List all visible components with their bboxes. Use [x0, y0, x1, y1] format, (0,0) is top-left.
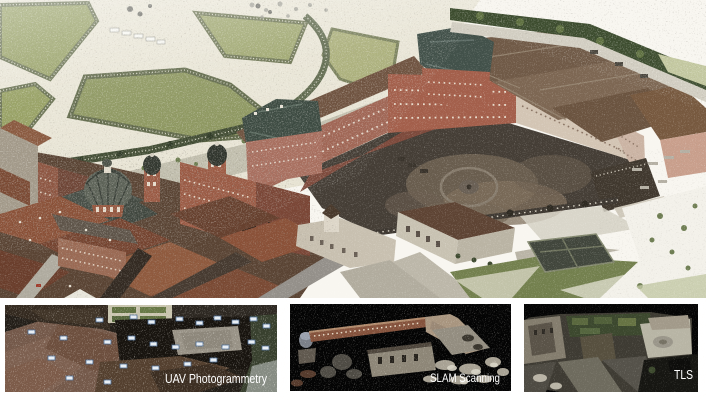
svg-text:UAV Photogrammetry: UAV Photogrammetry: [165, 372, 268, 386]
svg-text:TLS: TLS: [674, 367, 693, 382]
svg-text:SLAM Scanning: SLAM Scanning: [430, 371, 500, 385]
